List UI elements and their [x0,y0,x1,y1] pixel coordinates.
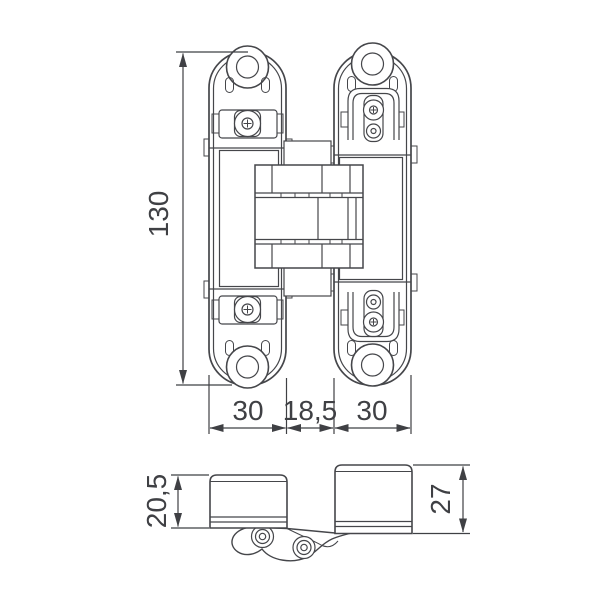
front-view [204,43,417,388]
right-leaf-section [335,465,412,534]
screw-hole-icon [227,346,269,388]
dim-label-left-depth: 20,5 [141,474,172,529]
right-top-adjuster [341,89,404,142]
right-bottom-adjuster [341,291,404,342]
technical-drawing-canvas: 130 30 18,5 30 20,5 27 [0,0,600,600]
left-leaf-section [210,475,287,528]
left-top-adjuster [212,110,283,138]
dim-label-height: 130 [143,191,174,238]
dim-label-right-width: 30 [356,395,387,426]
section-view [210,465,412,561]
screw-hole-icon [352,344,394,386]
hinge-knuckle [255,165,363,268]
screw-hole-icon [352,43,394,85]
dim-label-gap: 18,5 [283,395,338,426]
hinge-technical-drawing: 130 30 18,5 30 20,5 27 [0,0,600,600]
dim-label-right-depth: 27 [425,483,456,514]
dim-label-left-width: 30 [232,395,263,426]
left-bottom-adjuster [212,296,283,324]
dim-left-depth [171,475,209,528]
